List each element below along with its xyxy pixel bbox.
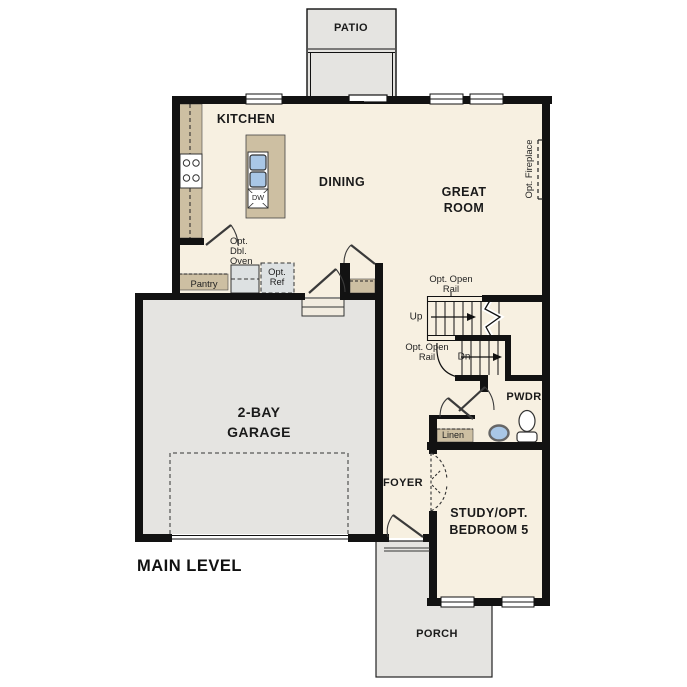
wall-right	[542, 96, 550, 606]
main-level-label: MAIN LEVEL	[137, 557, 242, 575]
dishwasher-label: DW	[252, 194, 264, 202]
wall-pantry-stub	[172, 238, 204, 245]
garage-label: 2-BAY GARAGE	[227, 402, 291, 442]
foyer-label: FOYER	[383, 477, 423, 489]
floor-plan-drawing	[0, 0, 687, 687]
wall-study-left	[429, 511, 437, 606]
wall-hall-bottom	[427, 442, 550, 450]
wall-left	[172, 96, 180, 297]
patio-label: PATIO	[334, 22, 368, 34]
toilet-icon	[519, 411, 535, 432]
opt-open-rail-lower-label: Opt. Open Rail	[405, 342, 448, 362]
floor-plan: PATIO KITCHEN DINING GREAT ROOM Opt. Fir…	[0, 0, 687, 687]
wall-garage-left	[135, 293, 143, 542]
opt-open-rail-upper-label: Opt. Open Rail	[429, 274, 472, 294]
wall-corridor	[375, 297, 383, 542]
wall-study-left-stub	[429, 450, 437, 454]
up-label: Up	[410, 312, 423, 323]
great-room-label: GREAT ROOM	[442, 184, 487, 216]
sink-basin-icon	[250, 155, 266, 170]
dining-label: DINING	[319, 176, 365, 190]
wall-closet-jamb-right	[375, 263, 383, 297]
wall-garage-bottom-left	[135, 534, 172, 542]
wall-garage-bottom-right	[348, 534, 379, 542]
pwdr-sink-icon	[490, 426, 509, 441]
wall-stair-right	[505, 335, 511, 381]
kitchen-label: KITCHEN	[217, 113, 275, 127]
sink-basin-icon	[250, 172, 266, 187]
garage-step	[302, 298, 344, 307]
pwdr-label: PWDR	[506, 391, 541, 403]
dn-label: Dn	[458, 352, 471, 363]
toilet-base	[517, 432, 537, 442]
linen-label: Linen	[442, 431, 464, 441]
opt-ref-label: Opt. Ref	[268, 267, 286, 287]
pantry-label: Pantry	[190, 279, 217, 289]
wall-stair-mid	[455, 335, 511, 341]
patio-sliding-door	[349, 95, 387, 102]
garage-step	[302, 307, 344, 316]
wall-foyer-bottom-left	[375, 534, 389, 542]
wall-greatroom-stair	[482, 295, 542, 302]
range-icon	[180, 154, 202, 188]
wall-garage-top-left	[135, 293, 305, 300]
porch-label: PORCH	[416, 628, 458, 640]
opt-dbl-oven-label: Opt. Dbl. Oven	[230, 236, 252, 266]
study-label: STUDY/OPT. BEDROOM 5	[449, 505, 528, 539]
opt-fireplace-label: Opt. Fireplace	[524, 140, 534, 199]
